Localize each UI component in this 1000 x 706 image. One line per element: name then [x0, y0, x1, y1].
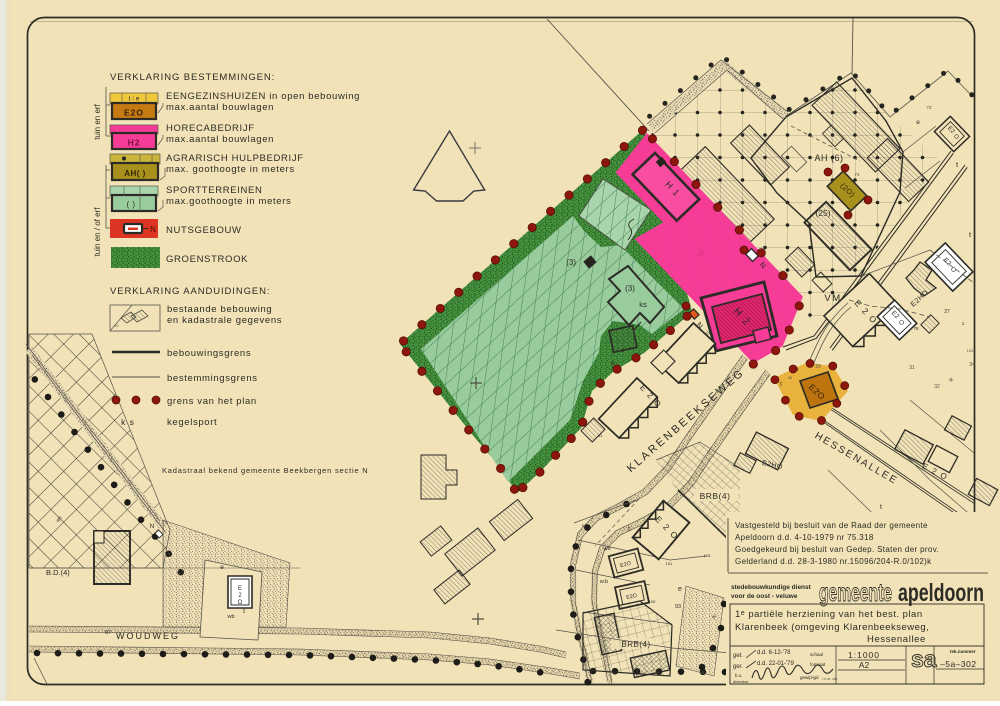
- svg-text:d.d. 6-12-'78: d.d. 6-12-'78: [757, 650, 791, 656]
- svg-text:t: t: [243, 608, 245, 615]
- svg-text:e: e: [916, 119, 920, 126]
- svg-text:Klarenbeek (omgeving Klarenbee: Klarenbeek (omgeving Klarenbeekseweg,: [735, 622, 929, 633]
- svg-text:ger.: ger.: [733, 664, 743, 670]
- svg-text:EENGEZINSHUIZEN in open beb: EENGEZINSHUIZEN in open bebouwing: [166, 91, 360, 102]
- svg-text:tek.nummer: tek.nummer: [950, 649, 976, 654]
- svg-text:32: 32: [934, 384, 940, 390]
- svg-text:w.b: w.b: [599, 579, 608, 585]
- svg-text:103: 103: [704, 553, 711, 558]
- svg-text:wb: wb: [602, 546, 610, 552]
- svg-text:Apeldoorn d.d. 4-10-1979: Apeldoorn d.d. 4-10-1979 nr 75.318: [735, 533, 874, 542]
- svg-text:SPORTTERREINEN: SPORTTERREINEN: [166, 185, 263, 196]
- svg-text:t ∶ e: t ∶ e: [129, 96, 140, 103]
- svg-text:BRB(4): BRB(4): [621, 640, 650, 649]
- svg-text:sa: sa: [911, 646, 937, 672]
- svg-text:VM: VM: [824, 293, 841, 304]
- svg-text:29: 29: [815, 364, 821, 370]
- svg-text:N: N: [150, 225, 156, 234]
- svg-text:HORECABEDRIJF: HORECABEDRIJF: [166, 123, 255, 134]
- svg-text:AH( ): AH( ): [124, 169, 146, 178]
- svg-text:+: +: [948, 375, 953, 385]
- svg-text:stedebouwkundige dienst: stedebouwkundige dienst: [731, 584, 812, 591]
- svg-text:93: 93: [675, 604, 681, 610]
- svg-text:–5a–302: –5a–302: [940, 659, 977, 669]
- svg-text:e: e: [678, 586, 682, 593]
- svg-text:H2: H2: [128, 138, 141, 148]
- svg-text:e: e: [220, 564, 224, 571]
- svg-text:kegelsport: kegelsport: [167, 417, 217, 428]
- svg-text:103: 103: [967, 348, 974, 353]
- svg-text:45: 45: [788, 375, 793, 380]
- svg-text:Gelderland d.d. 28-3-1980 n: Gelderland d.d. 28-3-1980 nr.15096/204-R…: [735, 557, 932, 566]
- svg-text:k s: k s: [121, 417, 135, 427]
- svg-text:GROENSTROOK: GROENSTROOK: [166, 254, 248, 265]
- svg-text:directeur: directeur: [733, 679, 749, 684]
- svg-text:78: 78: [913, 326, 919, 331]
- svg-text:wb: wb: [226, 614, 234, 620]
- svg-text:apeldoorn: apeldoorn: [898, 579, 984, 607]
- svg-text:d.d. 22-01-'79: d.d. 22-01-'79: [757, 661, 795, 667]
- svg-text:b: b: [622, 348, 625, 354]
- svg-text:N: N: [150, 523, 155, 530]
- svg-text:51: 51: [582, 523, 587, 528]
- svg-text:schaal: schaal: [810, 652, 823, 657]
- svg-text:Vastgesteld bij besluit van de: Vastgesteld bij besluit van de Raad der …: [735, 521, 928, 530]
- svg-text:gemeente: gemeente: [819, 579, 892, 607]
- svg-text:81: 81: [598, 433, 603, 438]
- svg-text:74: 74: [854, 172, 860, 177]
- svg-text:100: 100: [649, 599, 656, 604]
- svg-text:tuin en / of erf: tuin en / of erf: [93, 207, 102, 257]
- svg-text:B.D.(4): B.D.(4): [46, 568, 70, 577]
- svg-text:t: t: [780, 381, 782, 388]
- svg-text:BRB(4): BRB(4): [700, 491, 731, 501]
- svg-text:( ): ( ): [126, 200, 135, 209]
- svg-text:1:1000: 1:1000: [848, 650, 880, 660]
- svg-text:en kadastrale gegevens: en kadastrale gegevens: [167, 315, 282, 326]
- svg-text:Hessenallee: Hessenallee: [867, 634, 926, 645]
- svg-text:34: 34: [969, 362, 975, 368]
- svg-text:AGRARISCH HULPBEDRIJF: AGRARISCH HULPBEDRIJF: [166, 153, 304, 164]
- svg-text:+: +: [711, 612, 716, 622]
- svg-text:max.goothoogte in meters: max.goothoogte in meters: [166, 196, 291, 207]
- svg-text:bebouwingsgrens: bebouwingsgrens: [167, 348, 251, 359]
- svg-text:max.aantal bouwlagen: max.aantal bouwlagen: [166, 102, 274, 113]
- svg-text:bestemmingsgrens: bestemmingsgrens: [167, 373, 258, 384]
- svg-text:b.o.: b.o.: [735, 673, 743, 678]
- svg-text:gewijzigd: gewijzigd: [800, 675, 819, 680]
- svg-text:(3): (3): [625, 284, 635, 293]
- svg-text:(3): (3): [566, 258, 576, 267]
- svg-text:AH (6): AH (6): [814, 153, 843, 163]
- svg-text:(25): (25): [815, 208, 830, 218]
- svg-text:O: O: [238, 600, 243, 606]
- svg-text:t: t: [628, 526, 630, 533]
- svg-text:Goedgekeurd bij besluit van Ge: Goedgekeurd bij besluit van Gedep. State…: [735, 545, 939, 554]
- svg-text:NUTSGEBOUW: NUTSGEBOUW: [166, 225, 242, 236]
- svg-text:27: 27: [944, 309, 950, 315]
- svg-text:E: E: [238, 586, 242, 592]
- svg-text:grens van het plan: grens van het plan: [167, 396, 257, 407]
- svg-text:t: t: [880, 504, 882, 511]
- svg-text:31: 31: [909, 365, 915, 371]
- svg-text:get.: get.: [733, 653, 743, 659]
- svg-text:voor de oost - veluwe: voor de oost - veluwe: [731, 593, 798, 600]
- svg-text:ks: ks: [639, 300, 647, 309]
- svg-text:101: 101: [666, 561, 673, 566]
- svg-text:WOUDWEG: WOUDWEG: [116, 631, 180, 641]
- svg-text:bestaande bebouwing: bestaande bebouwing: [167, 304, 272, 315]
- svg-text:E2O: E2O: [124, 108, 144, 118]
- svg-text:tuin en erf: tuin en erf: [93, 103, 102, 139]
- svg-text:87: 87: [105, 630, 111, 636]
- svg-text:VERKLARING AANDUIDINGEN:: VERKLARING AANDUIDINGEN:: [110, 286, 270, 297]
- svg-text:max.aantal bouwlagen: max.aantal bouwlagen: [166, 134, 274, 145]
- svg-text:VERKLARING BESTEMMINGEN:: VERKLARING BESTEMMINGEN:: [110, 72, 275, 83]
- svg-text:Kadastraal bekend gemeente: Kadastraal bekend gemeente Beekbergen se…: [162, 466, 369, 475]
- svg-text:max. goothoogte in meters: max. goothoogte in meters: [166, 164, 295, 175]
- svg-text:1e partiële herziening van het: 1e partiële herziening van het best. pla…: [735, 609, 923, 620]
- svg-text:19: 19: [114, 323, 119, 328]
- svg-text:73: 73: [926, 105, 932, 110]
- svg-text:A2: A2: [859, 660, 870, 670]
